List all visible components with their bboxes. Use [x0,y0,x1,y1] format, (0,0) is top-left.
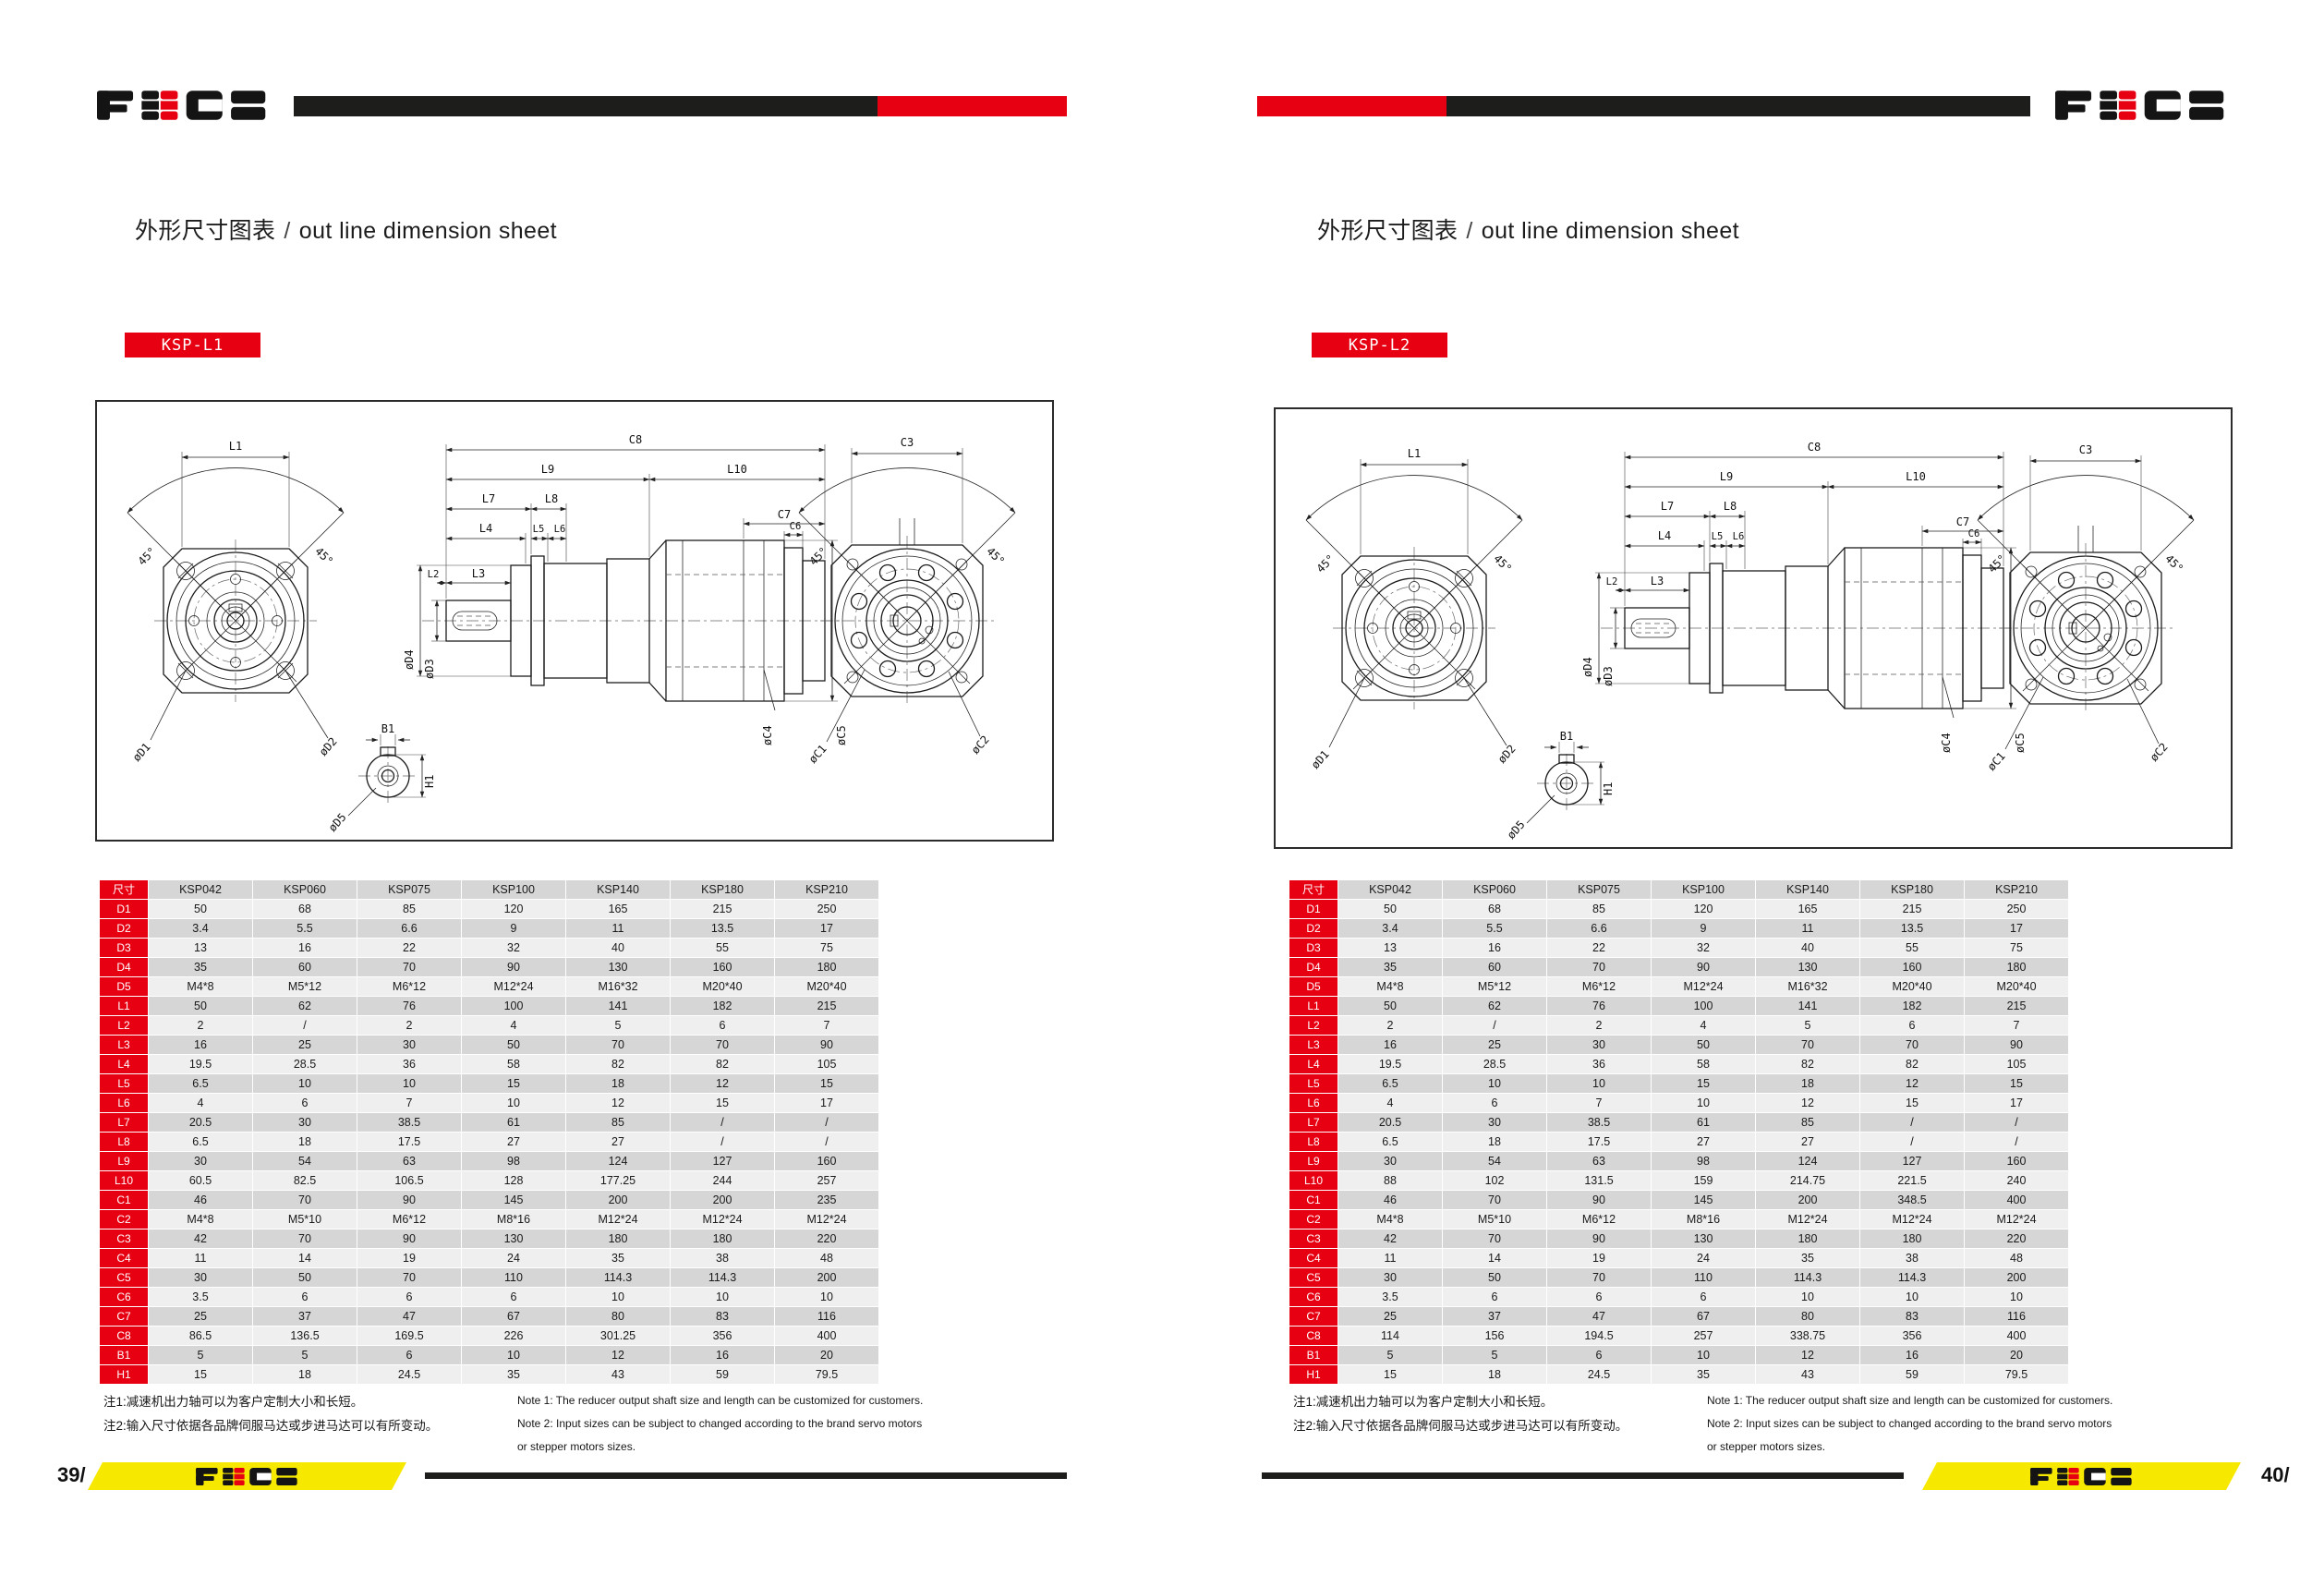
dimension-cell: 90 [357,1191,461,1209]
dimension-cell: 348.5 [1860,1191,1964,1209]
dimension-cell: 32 [1652,939,1755,957]
table-row: H1151824.535435979.5 [1289,1365,2068,1384]
rear-view: 45° 45° C3 øC1 øC2 [799,436,1015,766]
dimension-cell: M5*10 [1443,1210,1546,1229]
dimension-cell: M20*40 [671,977,774,996]
dimension-cell: 20.5 [149,1113,252,1132]
dimension-cell: 70 [253,1191,357,1209]
rear-view: 45° 45° C3 øC1 øC2 [1978,443,2194,773]
dimension-cell: 86.5 [149,1327,252,1345]
dim-label-angle-left: 45° [1986,552,2009,575]
dimension-cell: 16 [1443,939,1546,957]
dimension-cell: 24.5 [357,1365,461,1384]
row-label: L1 [100,997,148,1015]
dimension-cell: 226 [462,1327,565,1345]
dim-label-l2: L2 [428,569,440,580]
letter-c [249,1468,271,1485]
dimension-cell: 59 [671,1365,774,1384]
row-label: B1 [100,1346,148,1364]
dimension-cell: 16 [1338,1036,1442,1054]
table-row: L930546398124127160 [100,1152,878,1170]
dimension-cell: 85 [1756,1113,1859,1132]
model-column-header: KSP060 [253,880,357,899]
letter-f [196,1468,217,1485]
note-en-2: Note 2: Input sizes can be subject to ch… [517,1417,922,1430]
dimension-cell: 5 [149,1346,252,1364]
dimension-cell: 11 [1756,919,1859,938]
dim-label-d1: øD1 [1309,748,1332,771]
dimension-cell: 80 [1756,1307,1859,1326]
table-row: L56.5101015181215 [100,1074,878,1093]
table-row: L1506276100141182215 [1289,997,2068,1015]
dimension-cell: 6 [671,1016,774,1035]
dimension-cell: 19 [1547,1249,1651,1267]
dimension-cell: 165 [566,900,670,918]
dimension-cell: 50 [149,900,252,918]
dimension-cell: 10 [1652,1094,1755,1112]
row-label: D5 [100,977,148,996]
dim-label-angle-right: 45° [984,545,1007,568]
dim-label-d2: øD2 [1495,743,1519,766]
dimension-cell: 127 [671,1152,774,1170]
dimension-cell: 338.75 [1756,1327,1859,1345]
dim-label-c7: C7 [1956,515,1969,528]
dimension-cell: 160 [1860,958,1964,976]
dimension-cell: 90 [1965,1036,2068,1054]
row-label: C6 [1289,1288,1338,1306]
row-label: L6 [1289,1094,1338,1112]
row-label: D2 [1289,919,1338,938]
dimension-cell: 28.5 [253,1055,357,1073]
dimension-cell: 182 [671,997,774,1015]
dimension-cell: 160 [775,1152,878,1170]
dimension-cell: 3.5 [149,1288,252,1306]
dim-label-l2: L2 [1606,576,1618,588]
dimension-cell: 90 [462,958,565,976]
dimension-cell: 10 [1965,1288,2068,1306]
dimension-cell: 30 [1338,1152,1442,1170]
dimension-cell: 400 [1965,1191,2068,1209]
dimension-cell: 15 [671,1094,774,1112]
model-column-header: KSP075 [1547,880,1651,899]
dimension-cell: 116 [1965,1307,2068,1326]
dimension-cell: / [1443,1016,1546,1035]
shaft-end-detail: B1 H1 øD5 [1505,730,1615,842]
dimension-cell: 110 [1652,1268,1755,1287]
dimension-cell: 16 [253,939,357,957]
dimension-cell: 7 [357,1094,461,1112]
model-column-header: KSP180 [671,880,774,899]
dimension-cell: 200 [1965,1268,2068,1287]
dimension-cell: 6 [1547,1346,1651,1364]
dimension-cell: 63 [1547,1152,1651,1170]
dimension-cell: M12*24 [566,1210,670,1229]
dim-label-c2: øC2 [969,733,992,757]
note-en-3: or stepper motors sizes. [1707,1440,1825,1453]
dimension-cell: 15 [1652,1074,1755,1093]
dimension-cell: 12 [1756,1094,1859,1112]
row-label: H1 [100,1365,148,1384]
row-label: L4 [100,1055,148,1073]
table-row: C5305070110114.3114.3200 [100,1268,878,1287]
dimension-cell: / [1965,1133,2068,1151]
row-label: D1 [100,900,148,918]
dimension-cell: 62 [253,997,357,1015]
row-label: C1 [1289,1191,1338,1209]
table-row: C5305070110114.3114.3200 [1289,1268,2068,1287]
dimension-cell: / [253,1016,357,1035]
dimension-cell: 35 [462,1365,565,1384]
size-header-cell: 尺寸 [100,880,148,899]
row-label: C7 [1289,1307,1338,1326]
dimension-cell: 54 [1443,1152,1546,1170]
table-row: C886.5136.5169.5226301.25356400 [100,1327,878,1345]
row-label: L7 [100,1113,148,1132]
dimension-cell: 18 [253,1365,357,1384]
dimension-cell: 63 [357,1152,461,1170]
dimension-cell: 200 [671,1191,774,1209]
dimension-cell: 80 [566,1307,670,1326]
dim-label-l5: L5 [533,524,545,535]
dim-label-angle-right: 45° [2162,552,2185,575]
model-column-header: KSP075 [357,880,461,899]
dimension-cell: 27 [1652,1133,1755,1151]
dimension-cell: 169.5 [357,1327,461,1345]
dimension-cell: 3.4 [1338,919,1442,938]
row-label: H1 [1289,1365,1338,1384]
dimension-cell: 70 [357,958,461,976]
dimension-cell: 10 [1652,1346,1755,1364]
page-title-zh: 外形尺寸图表 [135,218,275,244]
dim-label-c5: øC5 [835,725,848,745]
row-label: D3 [100,939,148,957]
dim-label-l3: L3 [1651,575,1664,588]
row-label: L3 [100,1036,148,1054]
table-row: L720.53038.56185// [1289,1113,2068,1132]
page-title-zh: 外形尺寸图表 [1317,218,1458,244]
dimension-cell: 43 [566,1365,670,1384]
dimension-cell: 13 [149,939,252,957]
dimension-cell: 10 [1443,1074,1546,1093]
model-badge: KSP-L2 [1312,333,1447,357]
dimension-cell: 82 [566,1055,670,1073]
dimension-cell: 18 [1756,1074,1859,1093]
dimension-cell: 356 [1860,1327,1964,1345]
dimension-cell: 4 [462,1016,565,1035]
dimension-cell: 90 [357,1230,461,1248]
dimension-cell: 30 [149,1152,252,1170]
dim-label-d1: øD1 [130,741,153,764]
dimension-cell: 124 [566,1152,670,1170]
footer-rule [425,1472,1067,1479]
dim-label-h1: H1 [1602,782,1615,795]
table-row: C63.5666101010 [100,1288,878,1306]
dimension-cell: 7 [775,1016,878,1035]
dimension-cell: 98 [1652,1152,1755,1170]
dim-label-l8: L8 [545,492,558,505]
footer-feco-logo [2027,1468,2136,1485]
dimension-cell: 24 [1652,1249,1755,1267]
dimension-cell: 156 [1443,1327,1546,1345]
dim-label-h1: H1 [423,775,436,788]
table-row: D313162232405575 [100,939,878,957]
dimension-cell: 10 [775,1288,878,1306]
dimension-cell: 67 [1652,1307,1755,1326]
row-label: L3 [1289,1036,1338,1054]
dimension-cell: 28.5 [1443,1055,1546,1073]
dimension-cell: 124 [1756,1152,1859,1170]
note-en-1: Note 1: The reducer output shaft size an… [517,1394,923,1407]
dimension-cell: 250 [775,900,878,918]
dimension-cell: 17.5 [357,1133,461,1151]
letter-f [97,91,133,120]
header-feco-logo [2055,91,2227,120]
dim-label-angle-right: 45° [1491,552,1514,575]
dimension-cell: 10 [566,1288,670,1306]
row-label: C3 [1289,1230,1338,1248]
dimension-cell: 3.5 [1338,1288,1442,1306]
dimension-cell: 36 [1547,1055,1651,1073]
dim-label-c8: C8 [629,433,642,446]
dimension-cell: 18 [1443,1365,1546,1384]
table-row: D435607090130160180 [1289,958,2068,976]
dimension-cell: 257 [775,1171,878,1190]
dimension-cell: 32 [462,939,565,957]
dimension-cell: 40 [566,939,670,957]
dimension-cell: M4*8 [149,1210,252,1229]
dimension-cell: 40 [1756,939,1859,957]
dimension-cell: 83 [671,1307,774,1326]
dimension-cell: 70 [1547,1268,1651,1287]
dimension-cell: 114.3 [566,1268,670,1287]
dimension-cell: 17 [775,1094,878,1112]
dimension-cell: 214.75 [1756,1171,1859,1190]
row-label: L8 [1289,1133,1338,1151]
table-row: L1088102131.5159214.75221.5240 [1289,1171,2068,1190]
model-badge: KSP-L1 [125,333,260,357]
dimension-cell: 12 [566,1346,670,1364]
dimension-cell: 130 [462,1230,565,1248]
letter-f [2055,91,2091,120]
dimension-cell: 82 [1860,1055,1964,1073]
dimension-cell: 141 [566,997,670,1015]
dimension-cell: 50 [1443,1268,1546,1287]
dimension-cell: 35 [1756,1249,1859,1267]
dim-label-l7: L7 [482,492,495,505]
dimension-cell: 30 [357,1036,461,1054]
dimension-cell: 6 [357,1346,461,1364]
letter-o [276,1468,297,1485]
dimension-cell: 200 [566,1191,670,1209]
header-bar-red [1257,96,1446,116]
model-column-header: KSP100 [462,880,565,899]
dimension-cell: 145 [1652,1191,1755,1209]
dimension-cell: 27 [1756,1133,1859,1151]
dimension-cell: M8*16 [462,1210,565,1229]
dimension-cell: M20*40 [1860,977,1964,996]
header-bar-black [294,96,878,116]
row-label: L8 [100,1133,148,1151]
shaft-end-detail: B1 H1 øD5 [326,722,436,834]
dimension-cell: 180 [1756,1230,1859,1248]
dimension-cell: 47 [357,1307,461,1326]
row-label: L10 [1289,1171,1338,1190]
note-zh-2: 注2:输入尺寸依据各品牌伺服马达或步进马达可以有所变动。 [1293,1415,1628,1434]
dimension-cell: 27 [566,1133,670,1151]
dimension-cell: 30 [1443,1113,1546,1132]
dimension-cell: 83 [1860,1307,1964,1326]
dimension-cell: 35 [566,1249,670,1267]
model-column-header: KSP140 [1756,880,1859,899]
dimension-cell: 116 [775,1307,878,1326]
dimension-cell: 215 [1965,997,2068,1015]
row-label: C8 [100,1327,148,1345]
dimension-cell: 35 [1338,958,1442,976]
side-view: C8 L9 L10 L7 L8 C7 L4 L5 L6 [403,433,848,745]
dimension-cell: 98 [462,1152,565,1170]
dimension-cell: M6*12 [357,977,461,996]
table-row: D23.45.56.691113.517 [100,919,878,938]
dimension-cell: 58 [462,1055,565,1073]
dimension-cell: 35 [149,958,252,976]
dimension-cell: 9 [462,919,565,938]
letter-e [141,91,177,120]
dim-label-angle-right: 45° [312,545,335,568]
dimension-cell: 114.3 [671,1268,774,1287]
dimension-cell: 70 [1547,958,1651,976]
dimension-cell: 79.5 [1965,1365,2068,1384]
dimension-cell: 220 [775,1230,878,1248]
row-label: D1 [1289,900,1338,918]
dimension-cell: 6.5 [1338,1074,1442,1093]
dimension-cell: 50 [1338,997,1442,1015]
table-row: L56.5101015181215 [1289,1074,2068,1093]
row-label: L9 [1289,1152,1338,1170]
dimension-cell: 36 [357,1055,461,1073]
dimension-cell: 37 [253,1307,357,1326]
dimension-cell: 68 [253,900,357,918]
dim-label-l1: L1 [1408,447,1421,460]
dimension-cell: 85 [357,900,461,918]
dimension-cell: 18 [253,1133,357,1151]
table-row: B155610121620 [1289,1346,2068,1364]
dimension-cell: 48 [775,1249,878,1267]
dimension-cell: 5.5 [1443,919,1546,938]
model-column-header: KSP210 [775,880,878,899]
table-row: L86.51817.52727// [100,1133,878,1151]
letter-e [223,1468,244,1485]
dimension-cell: 145 [462,1191,565,1209]
dimension-cell: 114.3 [1756,1268,1859,1287]
dim-label-c5: øC5 [2014,733,2027,753]
dimension-cell: 60.5 [149,1171,252,1190]
table-row: L1506276100141182215 [100,997,878,1015]
dimension-cell: 6 [1547,1288,1651,1306]
dimension-cell: 85 [566,1113,670,1132]
dimension-cell: 75 [775,939,878,957]
dimension-cell: 54 [253,1152,357,1170]
dimension-cell: 70 [671,1036,774,1054]
feco-logo [97,91,269,120]
dimension-cell: M8*16 [1652,1210,1755,1229]
dimension-cell: 11 [566,919,670,938]
dimension-cell: M4*8 [149,977,252,996]
dimension-cell: 12 [1756,1346,1859,1364]
dim-label-l1: L1 [229,440,242,453]
page-title: 外形尺寸图表/out line dimension sheet [1317,212,1739,246]
table-row: L22/24567 [1289,1016,2068,1035]
dimension-cell: 17 [775,919,878,938]
dimension-cell: 400 [775,1327,878,1345]
dimension-cell: 6 [462,1288,565,1306]
dimension-cell: 2 [357,1016,461,1035]
dimension-cell: 61 [1652,1113,1755,1132]
dim-label-l10: L10 [1906,470,1926,483]
dim-label-l8: L8 [1724,500,1737,513]
dimension-cell: 19.5 [149,1055,252,1073]
dimension-cell: 141 [1756,997,1859,1015]
dim-label-l6: L6 [1733,531,1745,542]
dimension-cell: 85 [1547,900,1651,918]
row-label: C6 [100,1288,148,1306]
row-label: L7 [1289,1113,1338,1132]
row-label: L9 [100,1152,148,1170]
dimension-cell: 20.5 [1338,1113,1442,1132]
letter-f [2030,1468,2052,1485]
dimension-cell: 110 [462,1268,565,1287]
dimension-cell: 48 [1965,1249,2068,1267]
dimension-cell: 105 [775,1055,878,1073]
dim-label-c8: C8 [1808,441,1821,454]
dimension-cell: 10 [462,1346,565,1364]
dimension-table: 尺寸KSP042KSP060KSP075KSP100KSP140KSP180KS… [99,879,879,1385]
dimension-cell: 5.5 [253,919,357,938]
dimension-cell: 18 [566,1074,670,1093]
dimension-cell: 50 [149,997,252,1015]
dimension-cell: M12*24 [1652,977,1755,996]
row-label: C8 [1289,1327,1338,1345]
dimension-cell: 70 [1443,1230,1546,1248]
table-row: L419.528.536588282105 [1289,1055,2068,1073]
note-en-3: or stepper motors sizes. [517,1440,635,1453]
dimension-cell: M4*8 [1338,977,1442,996]
dimension-cell: 27 [462,1133,565,1151]
dimension-cell: 60 [253,958,357,976]
dimension-cell: / [775,1113,878,1132]
dimension-cell: 3.4 [149,919,252,938]
model-column-header: KSP042 [149,880,252,899]
page-title: 外形尺寸图表/out line dimension sheet [135,212,557,246]
dimension-cell: 18 [1443,1133,1546,1151]
table-row: C7253747678083116 [100,1307,878,1326]
table-row: L419.528.536588282105 [100,1055,878,1073]
dimension-cell: 50 [253,1268,357,1287]
dimension-cell: 9 [1652,919,1755,938]
page-title-separator: / [1466,218,1472,244]
footer-logo-plate [88,1462,406,1490]
dimension-cell: 47 [1547,1307,1651,1326]
dimension-cell: 88 [1338,1171,1442,1190]
dimension-cell: 180 [671,1230,774,1248]
dimension-cell: 12 [1860,1074,1964,1093]
dimension-cell: 24 [462,1249,565,1267]
dimension-cell: 70 [1443,1191,1546,1209]
dimension-cell: 10 [253,1074,357,1093]
model-column-header: KSP180 [1860,880,1964,899]
dimension-cell: 55 [1860,939,1964,957]
dimension-cell: 25 [1443,1036,1546,1054]
dimension-cell: 68 [1443,900,1546,918]
